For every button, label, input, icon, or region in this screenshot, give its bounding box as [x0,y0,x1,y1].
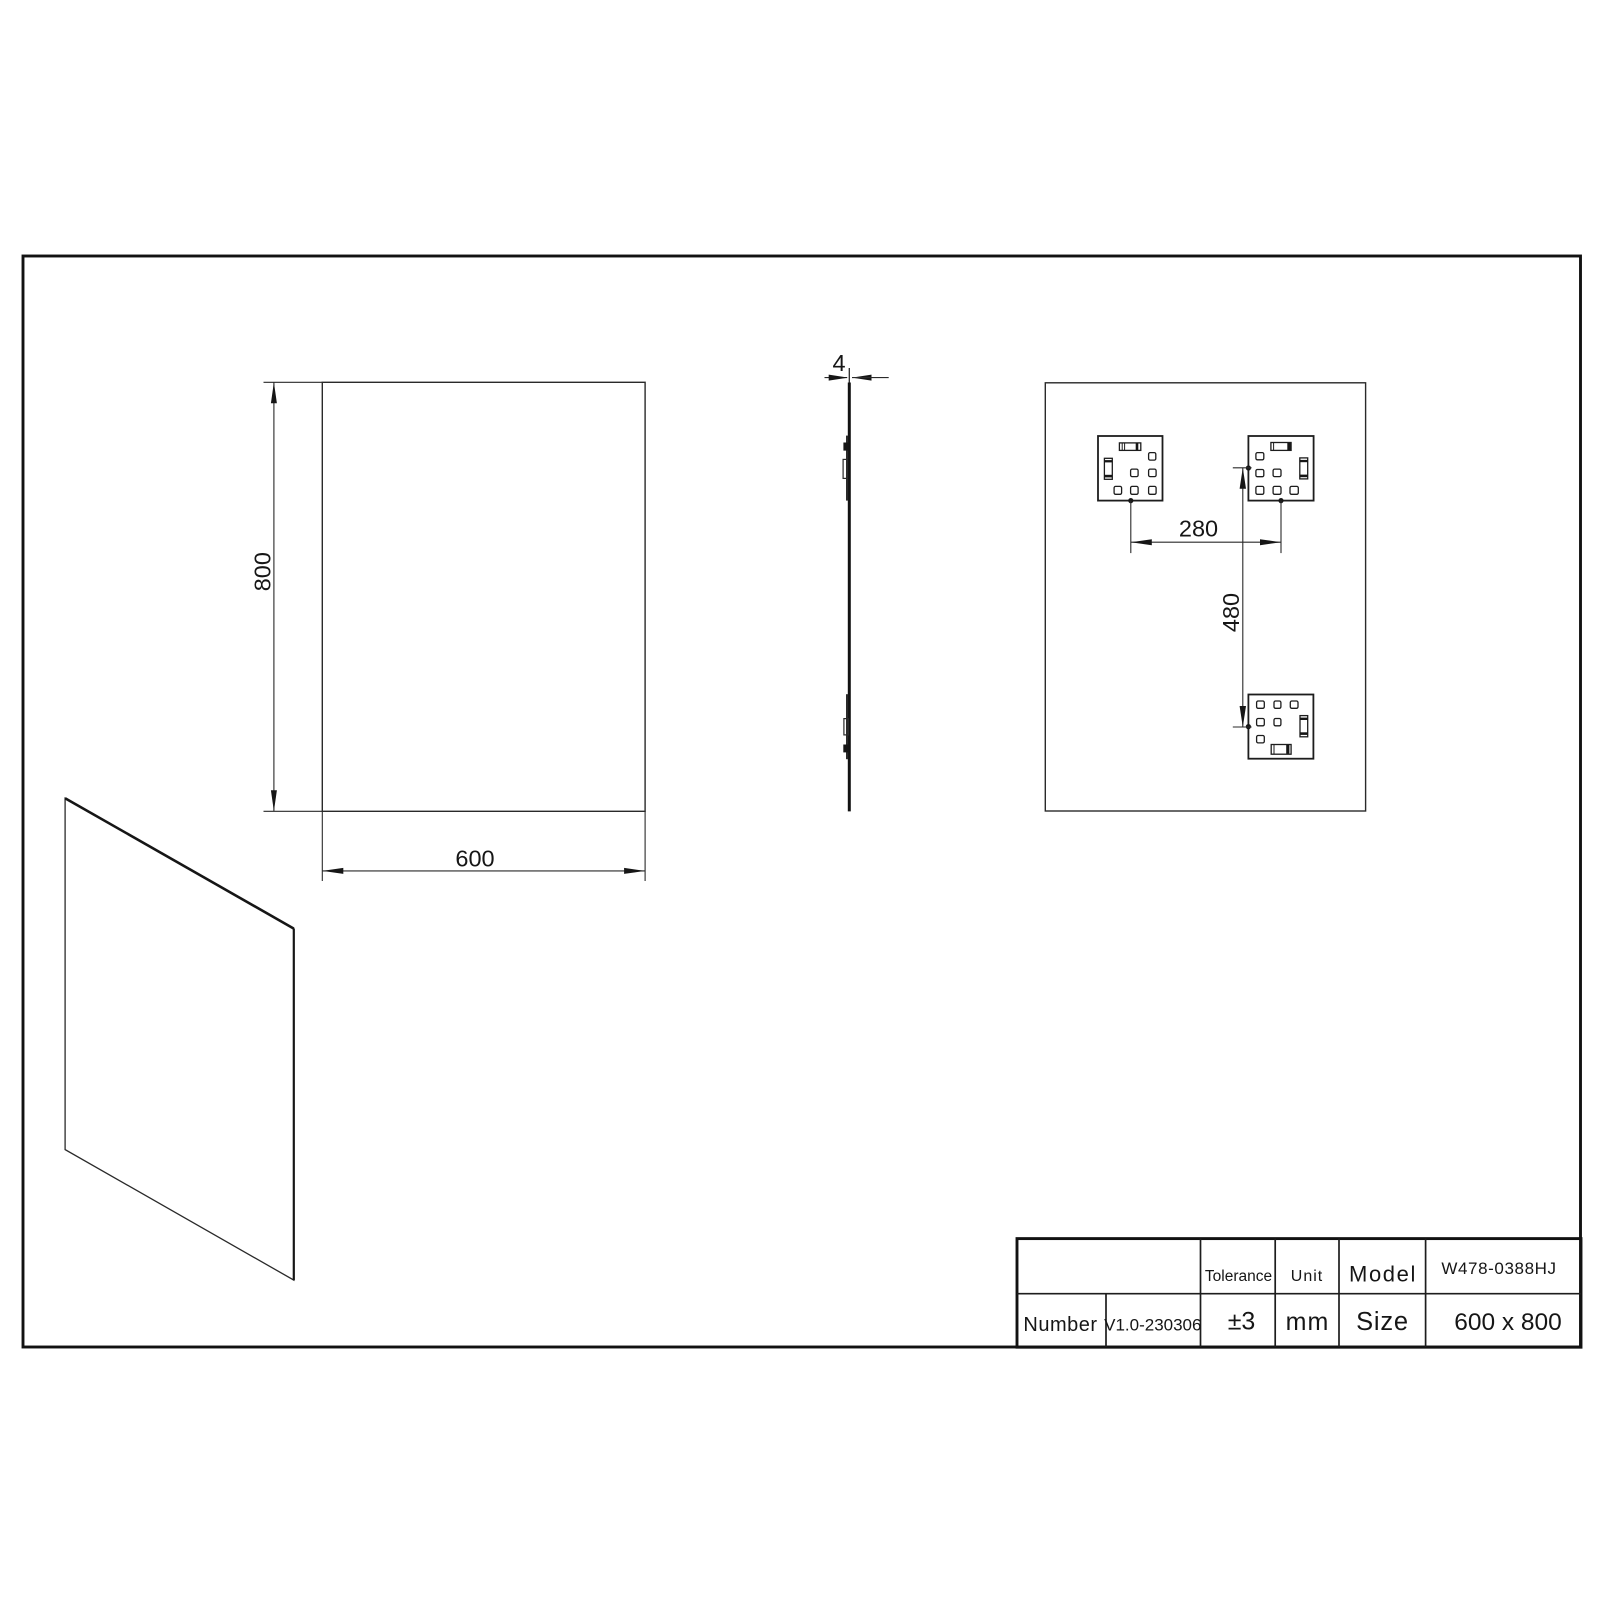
svg-text:600: 600 [455,846,494,872]
svg-text:W478-0388HJ: W478-0388HJ [1441,1259,1556,1278]
svg-text:V1.0-230306: V1.0-230306 [1104,1316,1201,1335]
svg-text:4: 4 [832,350,845,376]
svg-text:Tolerance: Tolerance [1205,1268,1272,1285]
svg-text:Unit: Unit [1291,1268,1323,1285]
svg-text:±3: ±3 [1228,1308,1256,1336]
svg-text:Model: Model [1349,1262,1417,1287]
svg-text:800: 800 [250,552,276,591]
svg-text:mm: mm [1286,1308,1330,1336]
svg-text:Size: Size [1356,1308,1409,1336]
svg-text:600 x 800: 600 x 800 [1454,1309,1562,1336]
svg-text:280: 280 [1179,515,1218,541]
svg-text:480: 480 [1218,593,1244,632]
svg-text:Number: Number [1023,1314,1097,1336]
